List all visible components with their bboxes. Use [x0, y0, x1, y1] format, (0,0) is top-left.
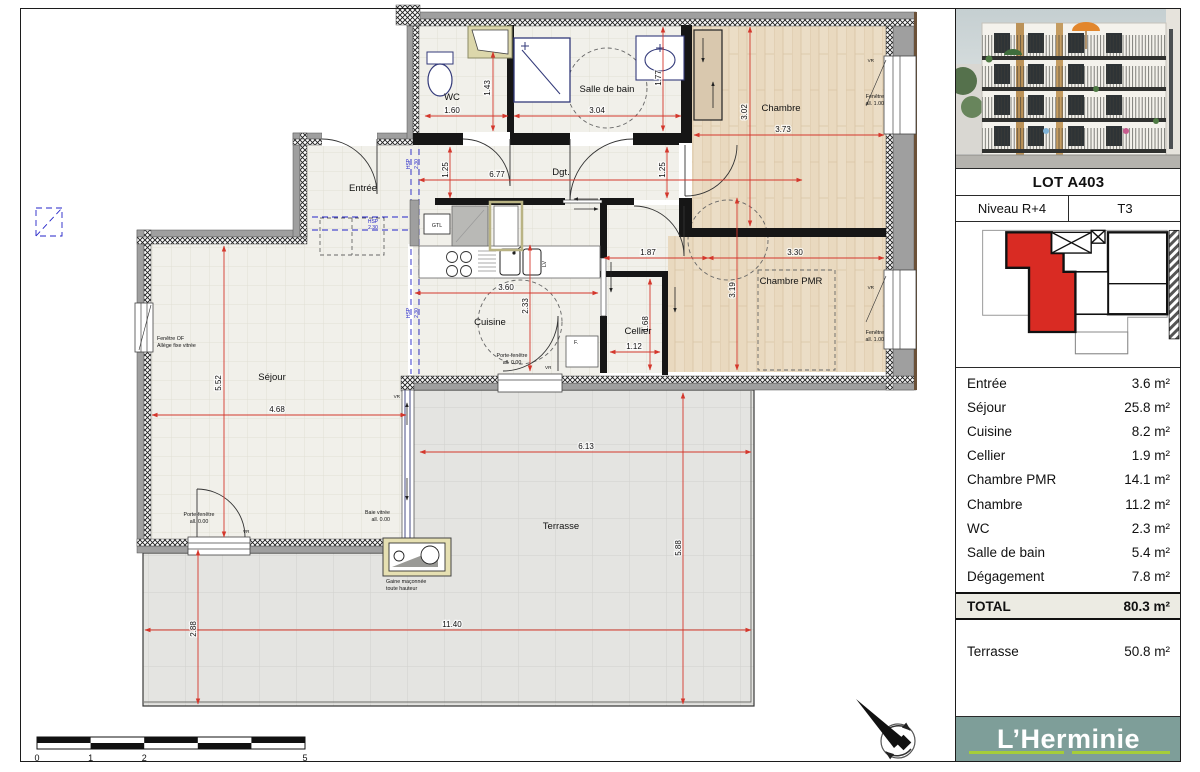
wc-washbasin-icon [468, 26, 512, 58]
room-label-cellier: Cellier [625, 326, 652, 337]
svg-text:3.02: 3.02 [740, 104, 749, 120]
hsp-label: HSP [406, 307, 412, 318]
total-row: TOTAL 80.3 m² [956, 592, 1181, 620]
porte-fenetre-cuisine [498, 374, 562, 392]
area-room: Séjour [967, 400, 1006, 415]
hsp-value: 2.30 [368, 225, 378, 231]
svg-text:4.68: 4.68 [269, 405, 285, 414]
svg-text:Porte-fenêtre: Porte-fenêtre [184, 512, 215, 518]
svg-text:VR: VR [545, 365, 552, 370]
svg-text:Fenêtre OF: Fenêtre OF [157, 336, 185, 342]
room-label-terrasse: Terrasse [543, 521, 579, 532]
svg-text:Allège fixe vitrée: Allège fixe vitrée [157, 343, 196, 349]
svg-text:1.43: 1.43 [483, 80, 492, 96]
room-label-chambre-pmr: Chambre PMR [760, 276, 823, 287]
area-value: 2.3 m² [1132, 521, 1170, 536]
terrasse-row: Terrasse 50.8 m² [956, 620, 1181, 717]
svg-text:1.12: 1.12 [626, 342, 642, 351]
building-render [956, 9, 1181, 169]
fridge-box [566, 336, 598, 367]
svg-text:VR: VR [394, 394, 401, 399]
svg-text:1.25: 1.25 [441, 162, 450, 178]
svg-text:Baie vitrée: Baie vitrée [365, 510, 390, 516]
area-row: Cuisine 8.2 m² [956, 424, 1181, 439]
total-value: 80.3 m² [1123, 599, 1170, 614]
svg-text:all. 0.00: all. 0.00 [190, 519, 209, 525]
room-label-chambre: Chambre [761, 103, 800, 114]
area-value: 1.9 m² [1132, 448, 1170, 463]
svg-text:3.73: 3.73 [775, 125, 791, 134]
floor-plan-sheet: HSP 2.30 HSP 2.30 HSP 2.30 [0, 0, 1200, 772]
fridge-label: F. [574, 340, 578, 346]
room-label-dgt: Dgt. [552, 167, 569, 178]
svg-text:0: 0 [34, 753, 39, 763]
area-value: 14.1 m² [1124, 472, 1170, 487]
svg-text:2.88: 2.88 [189, 621, 198, 637]
brand-logo: L’Herminie [956, 717, 1181, 761]
key-plan-drawing [956, 222, 1180, 367]
level-type-bar: Niveau R+4 T3 [956, 196, 1181, 222]
svg-text:toute hauteur: toute hauteur [386, 586, 417, 592]
area-row: Dégagement 7.8 m² [956, 569, 1181, 584]
room-label-wc: WC [444, 92, 460, 103]
area-value: 3.6 m² [1132, 376, 1170, 391]
gaine-maconnee [383, 538, 451, 576]
area-value: 11.2 m² [1125, 497, 1170, 512]
area-row: Cellier 1.9 m² [956, 448, 1181, 463]
wardrobe-chambre [694, 30, 722, 120]
terrasse-value: 50.8 m² [1124, 644, 1170, 659]
area-row: Salle de bain 5.4 m² [956, 545, 1181, 560]
svg-text:all. 1.00: all. 1.00 [865, 101, 884, 107]
svg-text:2.33: 2.33 [521, 298, 530, 314]
hsp-label: HSP [406, 158, 412, 169]
floor-plan-drawing: HSP 2.30 HSP 2.30 HSP 2.30 [0, 0, 956, 772]
key-plan [956, 222, 1181, 368]
svg-text:Fenêtre: Fenêtre [866, 94, 884, 100]
hsp-value: 2.30 [414, 159, 420, 169]
room-label-cuisine: Cuisine [474, 317, 506, 328]
lot-title: LOT A403 [956, 169, 1181, 196]
svg-text:all. 0.00: all. 0.00 [371, 517, 390, 523]
shower-icon [514, 38, 570, 102]
area-room: Chambre [967, 497, 1023, 512]
room-label-sejour: Séjour [258, 372, 285, 383]
toilet-icon [427, 52, 453, 96]
svg-text:1: 1 [88, 753, 93, 763]
area-room: Entrée [967, 376, 1007, 391]
svg-text:5.52: 5.52 [214, 375, 223, 391]
area-row: WC 2.3 m² [956, 521, 1181, 536]
svg-text:VR: VR [243, 529, 250, 534]
svg-text:5: 5 [302, 753, 307, 763]
svg-text:VR: VR [868, 58, 875, 63]
svg-text:1.87: 1.87 [640, 248, 656, 257]
svg-text:6.77: 6.77 [489, 170, 505, 179]
area-row: Entrée 3.6 m² [956, 376, 1181, 391]
area-row: Séjour 25.8 m² [956, 400, 1181, 415]
area-room: Dégagement [967, 569, 1044, 584]
svg-text:6.13: 6.13 [578, 442, 594, 451]
area-room: Cuisine [967, 424, 1012, 439]
svg-text:3.19: 3.19 [728, 282, 737, 298]
area-room: Salle de bain [967, 545, 1045, 560]
svg-text:1.60: 1.60 [444, 106, 460, 115]
svg-text:all. 0.00: all. 0.00 [503, 360, 522, 366]
area-room: Cellier [967, 448, 1005, 463]
area-value: 5.4 m² [1132, 545, 1170, 560]
total-label: TOTAL [967, 599, 1011, 614]
north-arrow-icon [856, 699, 915, 758]
area-row: Chambre PMR 14.1 m² [956, 472, 1181, 487]
hsp-value: 2.30 [414, 308, 420, 318]
area-table: Entrée 3.6 m² Séjour 25.8 m² Cuisine 8.2… [956, 368, 1181, 592]
level-label: Niveau R+4 [956, 196, 1069, 221]
lv-label: LV [542, 260, 548, 267]
area-room: Chambre PMR [967, 472, 1056, 487]
area-row: Chambre 11.2 m² [956, 497, 1181, 512]
scale-bar: 0 1 2 5 [34, 737, 307, 763]
svg-text:1.77: 1.77 [654, 70, 663, 86]
svg-text:2: 2 [142, 753, 147, 763]
svg-text:Gaine maçonnée: Gaine maçonnée [386, 579, 426, 585]
window-sejour-left [135, 303, 153, 352]
gtl-label: GTL [432, 223, 442, 229]
baie-vitree [402, 390, 414, 539]
logo-underline-right [1072, 751, 1170, 755]
svg-text:11.40: 11.40 [442, 620, 462, 629]
svg-text:5.88: 5.88 [674, 540, 683, 556]
logo-underline-left [969, 751, 1064, 755]
svg-text:3.30: 3.30 [787, 248, 803, 257]
svg-text:Porte-fenêtre: Porte-fenêtre [497, 353, 528, 359]
area-value: 25.8 m² [1124, 400, 1170, 415]
type-label: T3 [1069, 196, 1181, 221]
svg-text:VR: VR [868, 285, 875, 290]
area-room: WC [967, 521, 990, 536]
area-value: 8.2 m² [1132, 424, 1170, 439]
room-label-salle-de-bain: Salle de bain [580, 84, 635, 95]
svg-text:3.04: 3.04 [589, 106, 605, 115]
svg-text:3.60: 3.60 [498, 283, 514, 292]
info-sidebar: LOT A403 Niveau R+4 T3 [955, 9, 1181, 761]
terrasse-label: Terrasse [967, 644, 1019, 659]
svg-text:all. 1.00: all. 1.00 [865, 337, 884, 343]
svg-text:Fenêtre: Fenêtre [866, 330, 884, 336]
area-value: 7.8 m² [1132, 569, 1170, 584]
duct-column [410, 200, 419, 246]
building-photo [956, 9, 1181, 169]
room-label-entree: Entrée [349, 183, 377, 194]
porte-fenetre-sejour [188, 537, 250, 555]
svg-text:1.25: 1.25 [658, 162, 667, 178]
